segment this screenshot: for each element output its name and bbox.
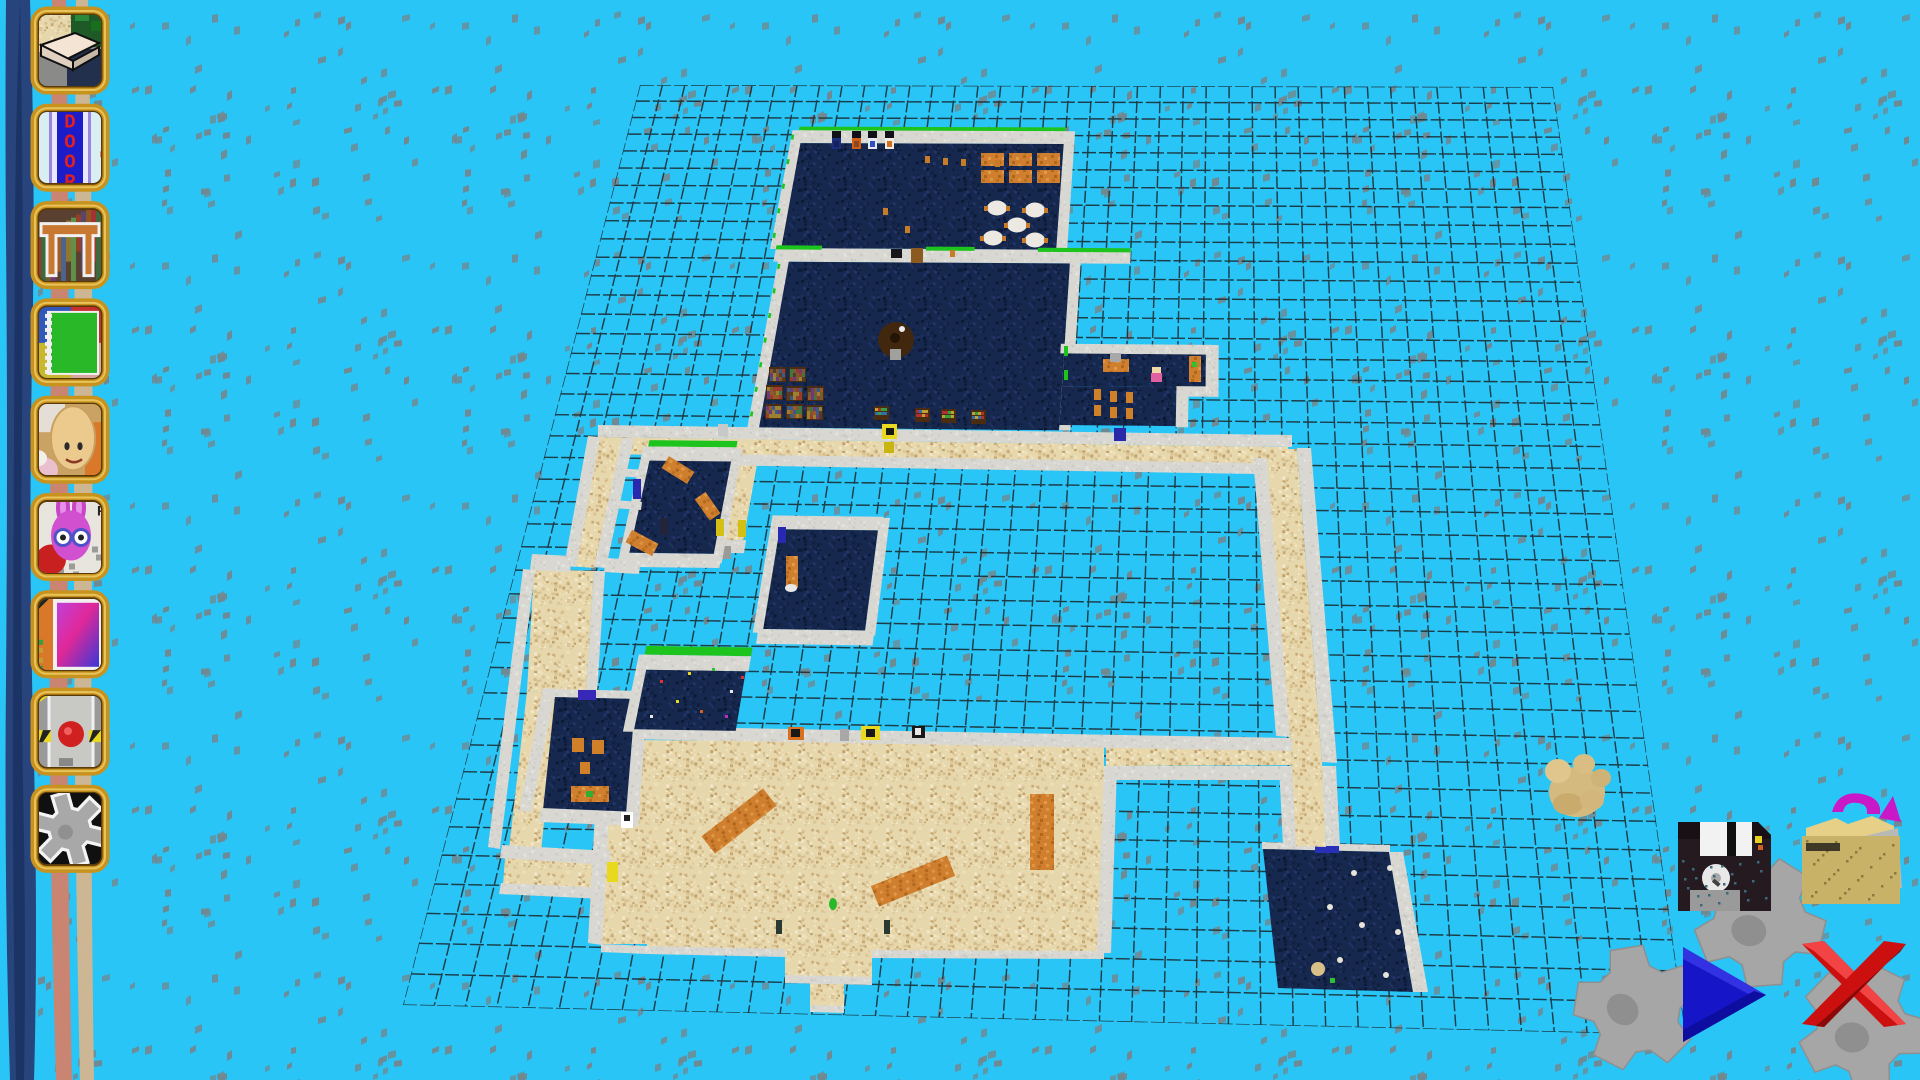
svg-text:D: D xyxy=(64,111,75,133)
svg-text:O: O xyxy=(64,131,75,153)
svg-text:O: O xyxy=(64,151,75,173)
